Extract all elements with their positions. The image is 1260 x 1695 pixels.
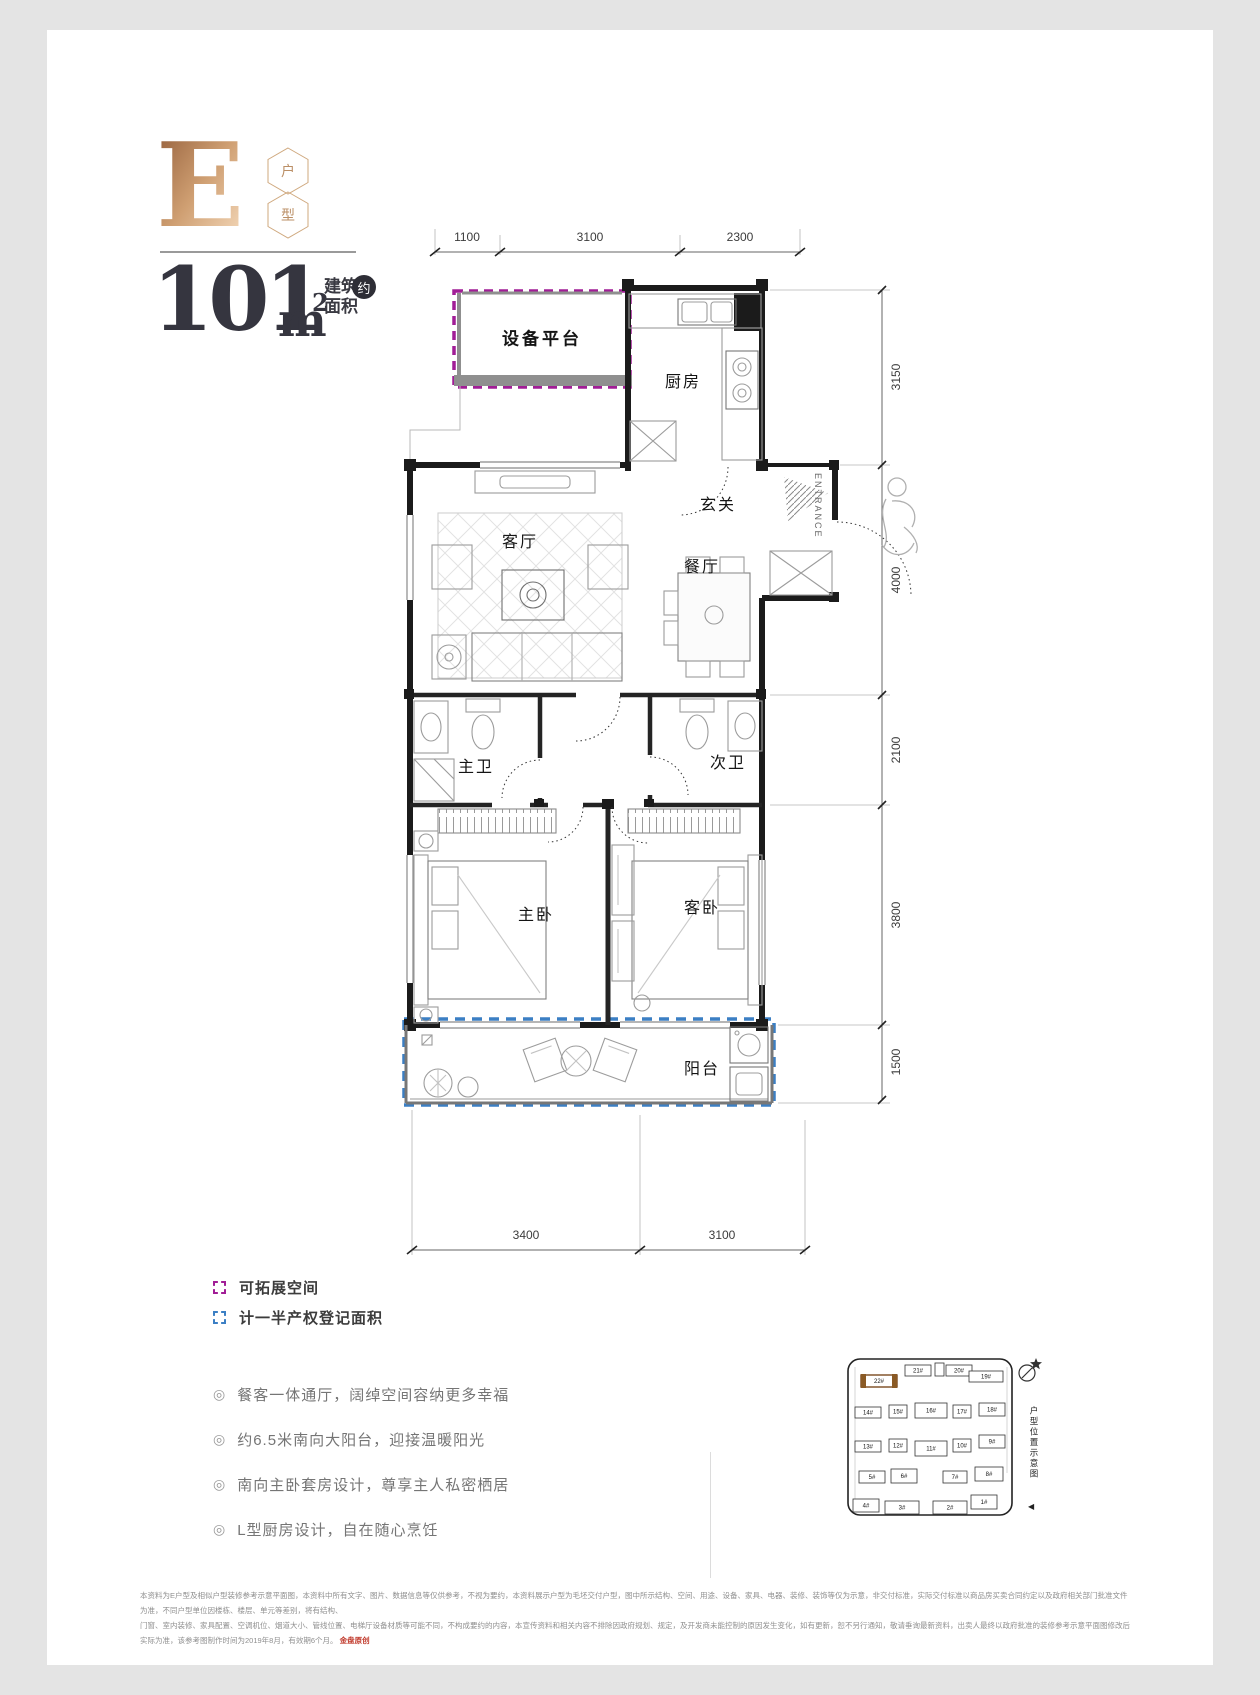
badge-char-bottom: 型 — [281, 207, 295, 223]
dim-top-2: 3100 — [577, 230, 604, 244]
svg-text:2#: 2# — [947, 1506, 954, 1512]
dim-top-3: 2300 — [727, 230, 754, 244]
svg-text:22#: 22# — [874, 1379, 885, 1385]
svg-text:4#: 4# — [863, 1504, 870, 1510]
legend-label: 可拓展空间 — [239, 1277, 319, 1298]
siteplan-building: 3# — [885, 1501, 919, 1514]
room-label-foyer: 玄关 — [700, 491, 736, 515]
svg-text:6#: 6# — [901, 1474, 908, 1480]
interior-walls — [410, 695, 762, 1025]
svg-text:1#: 1# — [981, 1500, 988, 1506]
svg-text:7#: 7# — [952, 1475, 959, 1481]
dim-right-5: 1500 — [889, 1049, 903, 1076]
feature-item: ◎ 南向主卧套房设计，尊享主人私密栖居 — [213, 1462, 509, 1507]
svg-text:5#: 5# — [869, 1475, 876, 1481]
siteplan-building: 13# — [855, 1441, 881, 1452]
furniture — [414, 294, 832, 1101]
svg-text:11#: 11# — [926, 1447, 936, 1453]
siteplan-building: 17# — [953, 1405, 971, 1418]
siteplan-building — [935, 1363, 944, 1376]
legend-item: 计一半产权登记面积 — [213, 1302, 383, 1332]
svg-text:16#: 16# — [926, 1409, 937, 1415]
approx-badge: 约 — [352, 275, 376, 299]
svg-text:8#: 8# — [986, 1472, 993, 1478]
dim-right-4: 3800 — [889, 902, 903, 929]
entrance-label: ENTRANCE — [813, 473, 823, 539]
room-label-dining: 餐厅 — [684, 553, 720, 577]
unit-type-letter: E — [156, 128, 244, 244]
person-sketch-icon — [882, 478, 917, 555]
svg-text:15#: 15# — [893, 1410, 904, 1416]
legend-item: 可拓展空间 — [213, 1272, 383, 1302]
feature-list: ◎ 餐客一体通厅，阔绰空间容纳更多幸福 ◎ 约6.5米南向大阳台，迎接温暖阳光 … — [213, 1372, 509, 1552]
siteplan-building: 12# — [889, 1439, 907, 1452]
siteplan-building: 1# — [971, 1495, 997, 1509]
legend: 可拓展空间 计一半产权登记面积 — [213, 1272, 383, 1332]
siteplan-caption: 户型位置示意图 — [1028, 1406, 1040, 1480]
siteplan-building: 11# — [915, 1441, 947, 1456]
dim-right-2: 4000 — [889, 567, 903, 594]
column-divider — [710, 1452, 711, 1578]
siteplan-building: 20# — [946, 1365, 972, 1376]
siteplan-building: 4# — [853, 1499, 879, 1512]
room-label-equipment: 设备平台 — [502, 325, 582, 350]
legend-swatch-icon — [213, 1281, 226, 1294]
siteplan-building: 8# — [975, 1467, 1003, 1481]
svg-text:19#: 19# — [981, 1375, 992, 1381]
floor-plan: 设备平台 厨房 玄关 客厅 餐厅 主卫 次卫 主卧 客卧 阳台 ENTRANCE… — [380, 215, 940, 1275]
brand-mark: 金盘原创 — [340, 1636, 370, 1645]
feature-text: 约6.5米南向大阳台，迎接温暖阳光 — [237, 1429, 485, 1450]
badge-char-top: 户 — [281, 163, 295, 179]
bullet-icon: ◎ — [213, 1431, 225, 1448]
siteplan-building: 21# — [905, 1365, 931, 1376]
page-background: E 户 型 101 m 2 建筑 面积 约 — [0, 0, 1260, 1695]
dim-top-1: 1100 — [454, 230, 480, 244]
feature-item: ◎ 餐客一体通厅，阔绰空间容纳更多幸福 — [213, 1372, 509, 1417]
legend-label: 计一半产权登记面积 — [239, 1307, 383, 1328]
room-label-kitchen: 厨房 — [665, 368, 701, 392]
dim-right-1: 3150 — [889, 364, 903, 391]
siteplan-building: 9# — [979, 1435, 1005, 1448]
room-label-master-bath: 主卫 — [458, 753, 494, 777]
bullet-icon: ◎ — [213, 1476, 225, 1493]
room-label-balcony: 阳台 — [684, 1055, 720, 1079]
siteplan-building: 10# — [953, 1439, 971, 1452]
svg-text:9#: 9# — [989, 1440, 996, 1446]
feature-item: ◎ L型厨房设计，自在随心烹饪 — [213, 1507, 509, 1552]
siteplan-building: 16# — [915, 1403, 947, 1418]
svg-text:3#: 3# — [899, 1506, 906, 1512]
svg-text:14#: 14# — [863, 1411, 874, 1417]
siteplan-pointer-icon: ◀ — [1028, 1502, 1034, 1511]
bullet-icon: ◎ — [213, 1386, 225, 1403]
disclaimer-line1: 本资料为E户型及相似户型装修参考示意平面图，本资料中所有文字、图片、数据信息等仅… — [140, 1591, 1128, 1615]
feature-text: 餐客一体通厅，阔绰空间容纳更多幸福 — [237, 1384, 509, 1405]
room-label-guest-bed: 客卧 — [684, 894, 720, 918]
siteplan-building: 18# — [979, 1403, 1005, 1416]
room-label-master-bed: 主卧 — [518, 901, 554, 925]
disclaimer: 本资料为E户型及相似户型装修参考示意平面图，本资料中所有文字、图片、数据信息等仅… — [140, 1588, 1130, 1648]
svg-text:13#: 13# — [863, 1445, 874, 1451]
svg-text:12#: 12# — [893, 1444, 904, 1450]
feature-item: ◎ 约6.5米南向大阳台，迎接温暖阳光 — [213, 1417, 509, 1462]
siteplan-building: 7# — [943, 1471, 967, 1483]
siteplan-building: 6# — [891, 1469, 917, 1483]
siteplan-building: 19# — [969, 1371, 1003, 1382]
siteplan-building: 22# — [861, 1374, 897, 1388]
floor-plan-drawing — [380, 215, 940, 1275]
bullet-icon: ◎ — [213, 1521, 225, 1538]
siteplan-building: 14# — [855, 1407, 881, 1418]
siteplan-building: 5# — [859, 1471, 885, 1483]
unit-type-badge: 户 型 — [264, 147, 312, 242]
svg-text:20#: 20# — [954, 1369, 965, 1375]
siteplan-map: 22#21#20#19#14#15#16#17#18#13#12#11#10#9… — [845, 1353, 1017, 1521]
svg-text:17#: 17# — [957, 1410, 968, 1416]
room-label-living: 客厅 — [502, 528, 538, 552]
feature-text: 南向主卧套房设计，尊享主人私密栖居 — [237, 1474, 509, 1495]
siteplan-building: 2# — [933, 1501, 967, 1514]
feature-text: L型厨房设计，自在随心烹饪 — [237, 1519, 438, 1540]
siteplan-building: 15# — [889, 1405, 907, 1418]
svg-text:21#: 21# — [913, 1369, 924, 1375]
disclaimer-line2: 门窗、室内装修、家具配置、空调机位、烟道大小、管线位置、电梯厅设备材质等可能不同… — [140, 1621, 1130, 1645]
dim-right-3: 2100 — [889, 737, 903, 764]
dim-bottom-2: 3100 — [709, 1228, 736, 1242]
room-label-second-bath: 次卫 — [710, 749, 746, 773]
svg-text:18#: 18# — [987, 1408, 998, 1414]
compass-icon — [1014, 1356, 1044, 1386]
svg-text:10#: 10# — [957, 1444, 968, 1450]
gray-walls — [410, 293, 632, 465]
dim-bottom-1: 3400 — [513, 1228, 540, 1242]
legend-swatch-icon — [213, 1311, 226, 1324]
